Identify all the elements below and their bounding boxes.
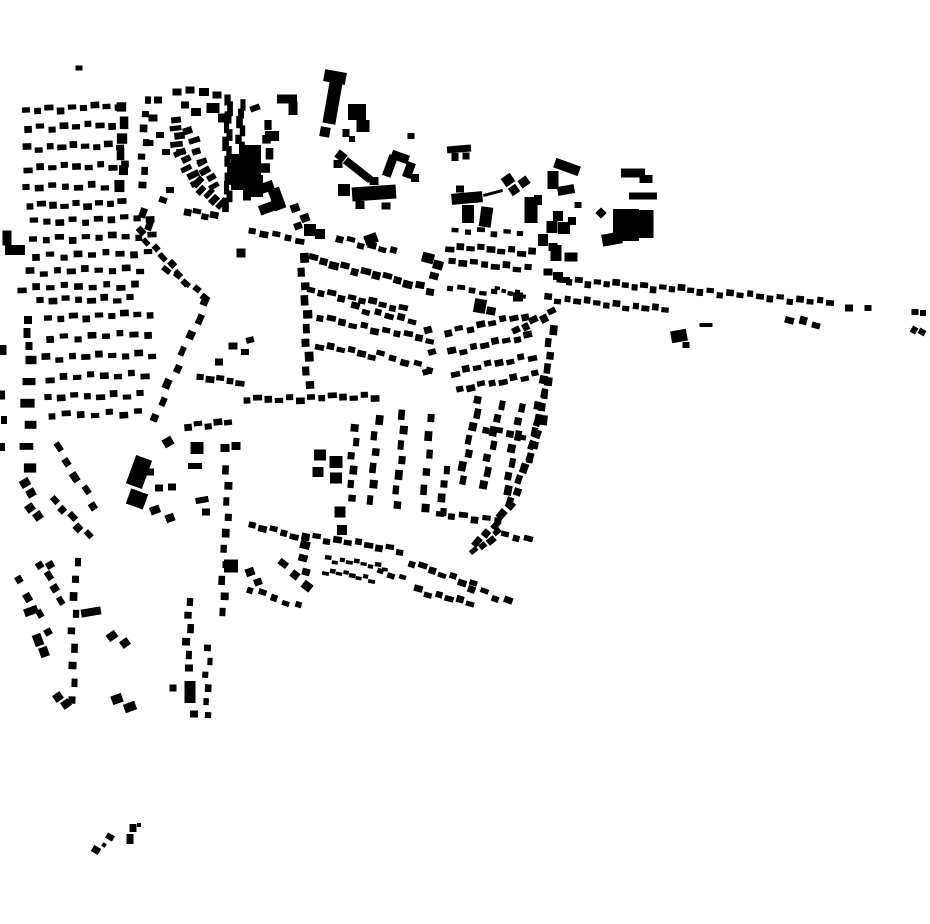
building	[275, 398, 284, 403]
building	[687, 287, 694, 293]
building	[87, 332, 96, 339]
building	[490, 231, 497, 237]
building	[622, 305, 630, 311]
building	[24, 328, 31, 338]
building	[134, 350, 143, 357]
building	[130, 824, 137, 832]
building	[353, 438, 360, 447]
building	[144, 332, 152, 339]
building	[97, 161, 104, 168]
building	[93, 144, 100, 150]
building	[130, 251, 138, 258]
building	[427, 414, 435, 423]
building	[440, 480, 447, 488]
building	[534, 195, 542, 205]
building	[652, 303, 659, 311]
building	[104, 140, 113, 147]
building	[393, 330, 401, 338]
building	[181, 102, 189, 109]
building	[94, 216, 103, 222]
building	[24, 126, 32, 133]
building	[507, 444, 516, 454]
building	[477, 244, 485, 250]
building	[67, 268, 76, 274]
building	[44, 315, 52, 321]
building	[147, 232, 156, 238]
building	[40, 271, 48, 277]
building	[80, 105, 87, 111]
building	[316, 315, 324, 323]
building	[70, 392, 78, 398]
building	[556, 277, 563, 283]
building	[568, 217, 576, 225]
building	[100, 294, 108, 301]
building	[398, 409, 405, 420]
building	[479, 480, 489, 490]
building	[350, 424, 359, 432]
building	[248, 227, 256, 234]
building	[115, 251, 124, 257]
building	[187, 598, 194, 606]
building	[76, 66, 83, 71]
building	[845, 305, 853, 312]
building	[119, 165, 128, 175]
building	[303, 324, 310, 334]
building	[463, 153, 470, 160]
building	[426, 449, 433, 458]
building	[30, 217, 39, 222]
building	[186, 87, 195, 94]
building	[594, 279, 602, 285]
building	[71, 644, 78, 653]
building	[411, 174, 419, 182]
building	[223, 497, 229, 506]
building	[544, 377, 553, 386]
building	[554, 298, 562, 304]
building	[120, 214, 129, 219]
building	[375, 544, 384, 552]
building	[422, 468, 430, 476]
building	[396, 549, 404, 556]
building	[102, 333, 110, 339]
building	[95, 200, 103, 206]
building	[48, 165, 57, 170]
building	[221, 444, 230, 452]
building	[83, 203, 92, 210]
building	[147, 140, 154, 146]
building	[116, 285, 125, 291]
building-footprint-map	[0, 0, 930, 924]
building	[486, 306, 496, 315]
building	[60, 373, 68, 380]
building	[503, 229, 511, 234]
building	[35, 185, 44, 192]
building	[371, 395, 380, 402]
building	[368, 564, 374, 569]
building	[148, 354, 156, 360]
building	[631, 284, 637, 291]
building	[75, 558, 81, 567]
building	[162, 149, 170, 155]
building	[213, 92, 222, 99]
building	[349, 465, 357, 474]
building	[264, 396, 272, 403]
building	[459, 512, 469, 519]
building	[81, 265, 89, 272]
building	[508, 246, 515, 253]
building	[420, 484, 427, 495]
building	[71, 679, 77, 688]
building	[136, 390, 143, 396]
building	[141, 167, 148, 175]
building	[575, 277, 583, 283]
building	[347, 480, 354, 489]
building	[138, 153, 146, 159]
building	[190, 711, 198, 718]
building	[517, 231, 524, 236]
building	[466, 246, 475, 252]
building	[146, 469, 154, 476]
building	[462, 205, 474, 223]
building	[220, 545, 227, 553]
building	[196, 374, 204, 381]
building	[325, 555, 332, 560]
building	[26, 203, 33, 210]
building	[322, 538, 330, 545]
building	[61, 282, 68, 288]
building	[421, 504, 430, 513]
building	[113, 298, 122, 303]
building	[24, 316, 32, 324]
building	[226, 378, 233, 385]
building	[494, 517, 502, 524]
building	[700, 323, 713, 327]
building	[826, 300, 834, 306]
building	[32, 254, 40, 261]
building	[243, 194, 251, 201]
building	[370, 431, 377, 441]
building	[23, 378, 36, 385]
building	[261, 163, 270, 173]
building	[75, 296, 82, 303]
building	[123, 394, 132, 399]
building	[120, 117, 129, 130]
building	[207, 103, 220, 113]
building	[776, 294, 784, 300]
building	[60, 255, 67, 261]
building	[25, 421, 37, 429]
building	[140, 373, 149, 379]
building	[87, 371, 94, 377]
building	[564, 296, 571, 303]
building	[584, 281, 591, 288]
building	[314, 450, 326, 461]
building	[43, 237, 50, 243]
building	[23, 167, 32, 173]
building	[218, 576, 225, 585]
building	[501, 289, 506, 294]
building	[140, 124, 148, 132]
building	[60, 204, 69, 209]
building	[24, 463, 36, 472]
building	[215, 359, 223, 366]
building	[920, 310, 926, 316]
building	[137, 823, 141, 827]
building	[34, 108, 41, 115]
building	[456, 243, 464, 250]
building	[369, 480, 378, 489]
building	[546, 352, 554, 360]
building	[17, 287, 26, 293]
building	[477, 227, 485, 232]
building	[68, 104, 77, 109]
building	[912, 309, 919, 315]
building	[284, 234, 292, 241]
building	[716, 292, 723, 299]
building	[116, 330, 123, 337]
building	[543, 363, 551, 374]
building	[229, 343, 238, 350]
building	[109, 268, 116, 274]
building	[566, 279, 572, 286]
building	[91, 413, 100, 418]
building	[26, 356, 37, 364]
building	[347, 452, 355, 460]
building	[747, 290, 754, 297]
building	[84, 121, 91, 128]
building	[29, 236, 37, 242]
building	[244, 397, 251, 404]
building	[207, 658, 212, 666]
building	[82, 219, 89, 226]
building	[339, 393, 347, 400]
building	[90, 102, 99, 109]
building	[103, 281, 110, 287]
building	[5, 245, 25, 255]
building	[184, 424, 192, 432]
building	[89, 285, 97, 291]
building	[363, 574, 369, 579]
building	[108, 353, 117, 358]
building	[77, 411, 85, 418]
building	[357, 120, 370, 132]
building	[193, 421, 202, 427]
building	[549, 325, 558, 336]
building	[49, 202, 57, 209]
building	[218, 114, 230, 123]
building	[473, 298, 487, 314]
building	[448, 258, 456, 265]
building	[170, 685, 177, 692]
building	[74, 185, 83, 191]
building	[302, 366, 310, 375]
building	[328, 392, 337, 398]
building	[149, 115, 158, 122]
building	[333, 536, 343, 544]
building	[145, 96, 151, 104]
building	[544, 269, 553, 276]
building	[107, 201, 114, 208]
building	[394, 470, 403, 481]
building	[661, 307, 669, 313]
building	[622, 282, 629, 288]
building	[337, 525, 347, 535]
building	[154, 97, 162, 104]
building	[48, 182, 56, 188]
building	[204, 644, 211, 651]
building	[372, 448, 380, 456]
building	[144, 249, 153, 254]
building	[629, 193, 657, 200]
building	[44, 394, 51, 400]
building	[343, 129, 350, 137]
building	[202, 671, 208, 678]
building	[134, 408, 142, 414]
building	[74, 283, 83, 290]
building	[786, 299, 793, 306]
building	[126, 294, 133, 300]
building	[48, 298, 57, 305]
building	[448, 513, 455, 520]
building	[593, 300, 601, 306]
building	[95, 312, 104, 317]
building	[55, 219, 64, 226]
building	[32, 283, 40, 290]
building	[235, 380, 245, 387]
building	[369, 463, 377, 474]
building	[213, 418, 222, 425]
building	[289, 101, 298, 115]
building	[62, 183, 69, 190]
building	[513, 293, 523, 302]
building	[313, 467, 324, 477]
building	[639, 210, 654, 238]
building	[82, 234, 91, 239]
building	[408, 133, 415, 139]
building	[69, 216, 77, 222]
building	[44, 105, 53, 111]
building	[458, 260, 467, 267]
building	[68, 662, 76, 670]
building	[199, 88, 209, 96]
building	[184, 612, 192, 619]
building	[425, 288, 434, 296]
building	[222, 198, 229, 212]
building	[486, 246, 495, 253]
building	[95, 122, 104, 128]
building	[300, 253, 309, 263]
building	[817, 297, 824, 304]
building	[61, 162, 68, 168]
building	[541, 389, 548, 399]
building	[22, 143, 31, 150]
building	[335, 507, 346, 518]
building	[101, 185, 110, 190]
building	[399, 425, 408, 434]
building	[497, 249, 505, 255]
building	[133, 312, 141, 318]
building	[85, 165, 93, 171]
building	[117, 149, 125, 161]
building	[468, 422, 478, 432]
building	[216, 375, 224, 381]
building	[756, 293, 764, 299]
building	[338, 184, 350, 196]
building	[575, 202, 582, 208]
building	[70, 592, 78, 601]
building	[84, 393, 91, 400]
building	[538, 403, 546, 412]
building	[502, 261, 510, 268]
building	[479, 291, 487, 296]
building	[452, 153, 459, 161]
building	[482, 515, 491, 521]
building	[706, 288, 714, 294]
building	[136, 269, 144, 275]
building	[231, 154, 243, 190]
building	[94, 267, 103, 272]
building	[205, 712, 212, 718]
building	[241, 349, 249, 355]
building	[549, 243, 558, 251]
building	[361, 392, 368, 398]
building	[20, 399, 34, 408]
building	[122, 264, 131, 271]
building	[100, 372, 109, 379]
building	[0, 345, 7, 355]
building	[514, 417, 523, 426]
building	[659, 284, 667, 290]
building	[524, 264, 532, 271]
building	[108, 232, 117, 239]
map-canvas	[0, 0, 930, 924]
building	[470, 516, 478, 524]
building	[69, 237, 77, 244]
building	[55, 234, 64, 240]
building	[46, 251, 55, 256]
building	[72, 163, 81, 170]
building	[338, 318, 347, 326]
building	[465, 229, 471, 235]
building	[584, 296, 591, 304]
building	[264, 120, 271, 130]
building	[382, 203, 391, 210]
building	[219, 608, 225, 617]
building	[444, 466, 451, 475]
building	[367, 495, 374, 505]
building	[224, 419, 232, 425]
building	[119, 412, 128, 419]
building	[319, 126, 331, 138]
building	[95, 235, 102, 241]
building	[72, 124, 80, 130]
building	[224, 560, 238, 573]
building	[547, 221, 558, 233]
building	[54, 267, 61, 273]
building	[265, 131, 279, 141]
building	[155, 485, 163, 492]
building	[222, 465, 229, 474]
building	[304, 224, 316, 236]
building	[82, 315, 90, 322]
building	[127, 834, 134, 844]
building	[0, 391, 5, 400]
building	[424, 431, 432, 441]
building	[538, 234, 548, 246]
building	[392, 485, 399, 495]
building	[612, 279, 620, 286]
building	[95, 350, 103, 357]
